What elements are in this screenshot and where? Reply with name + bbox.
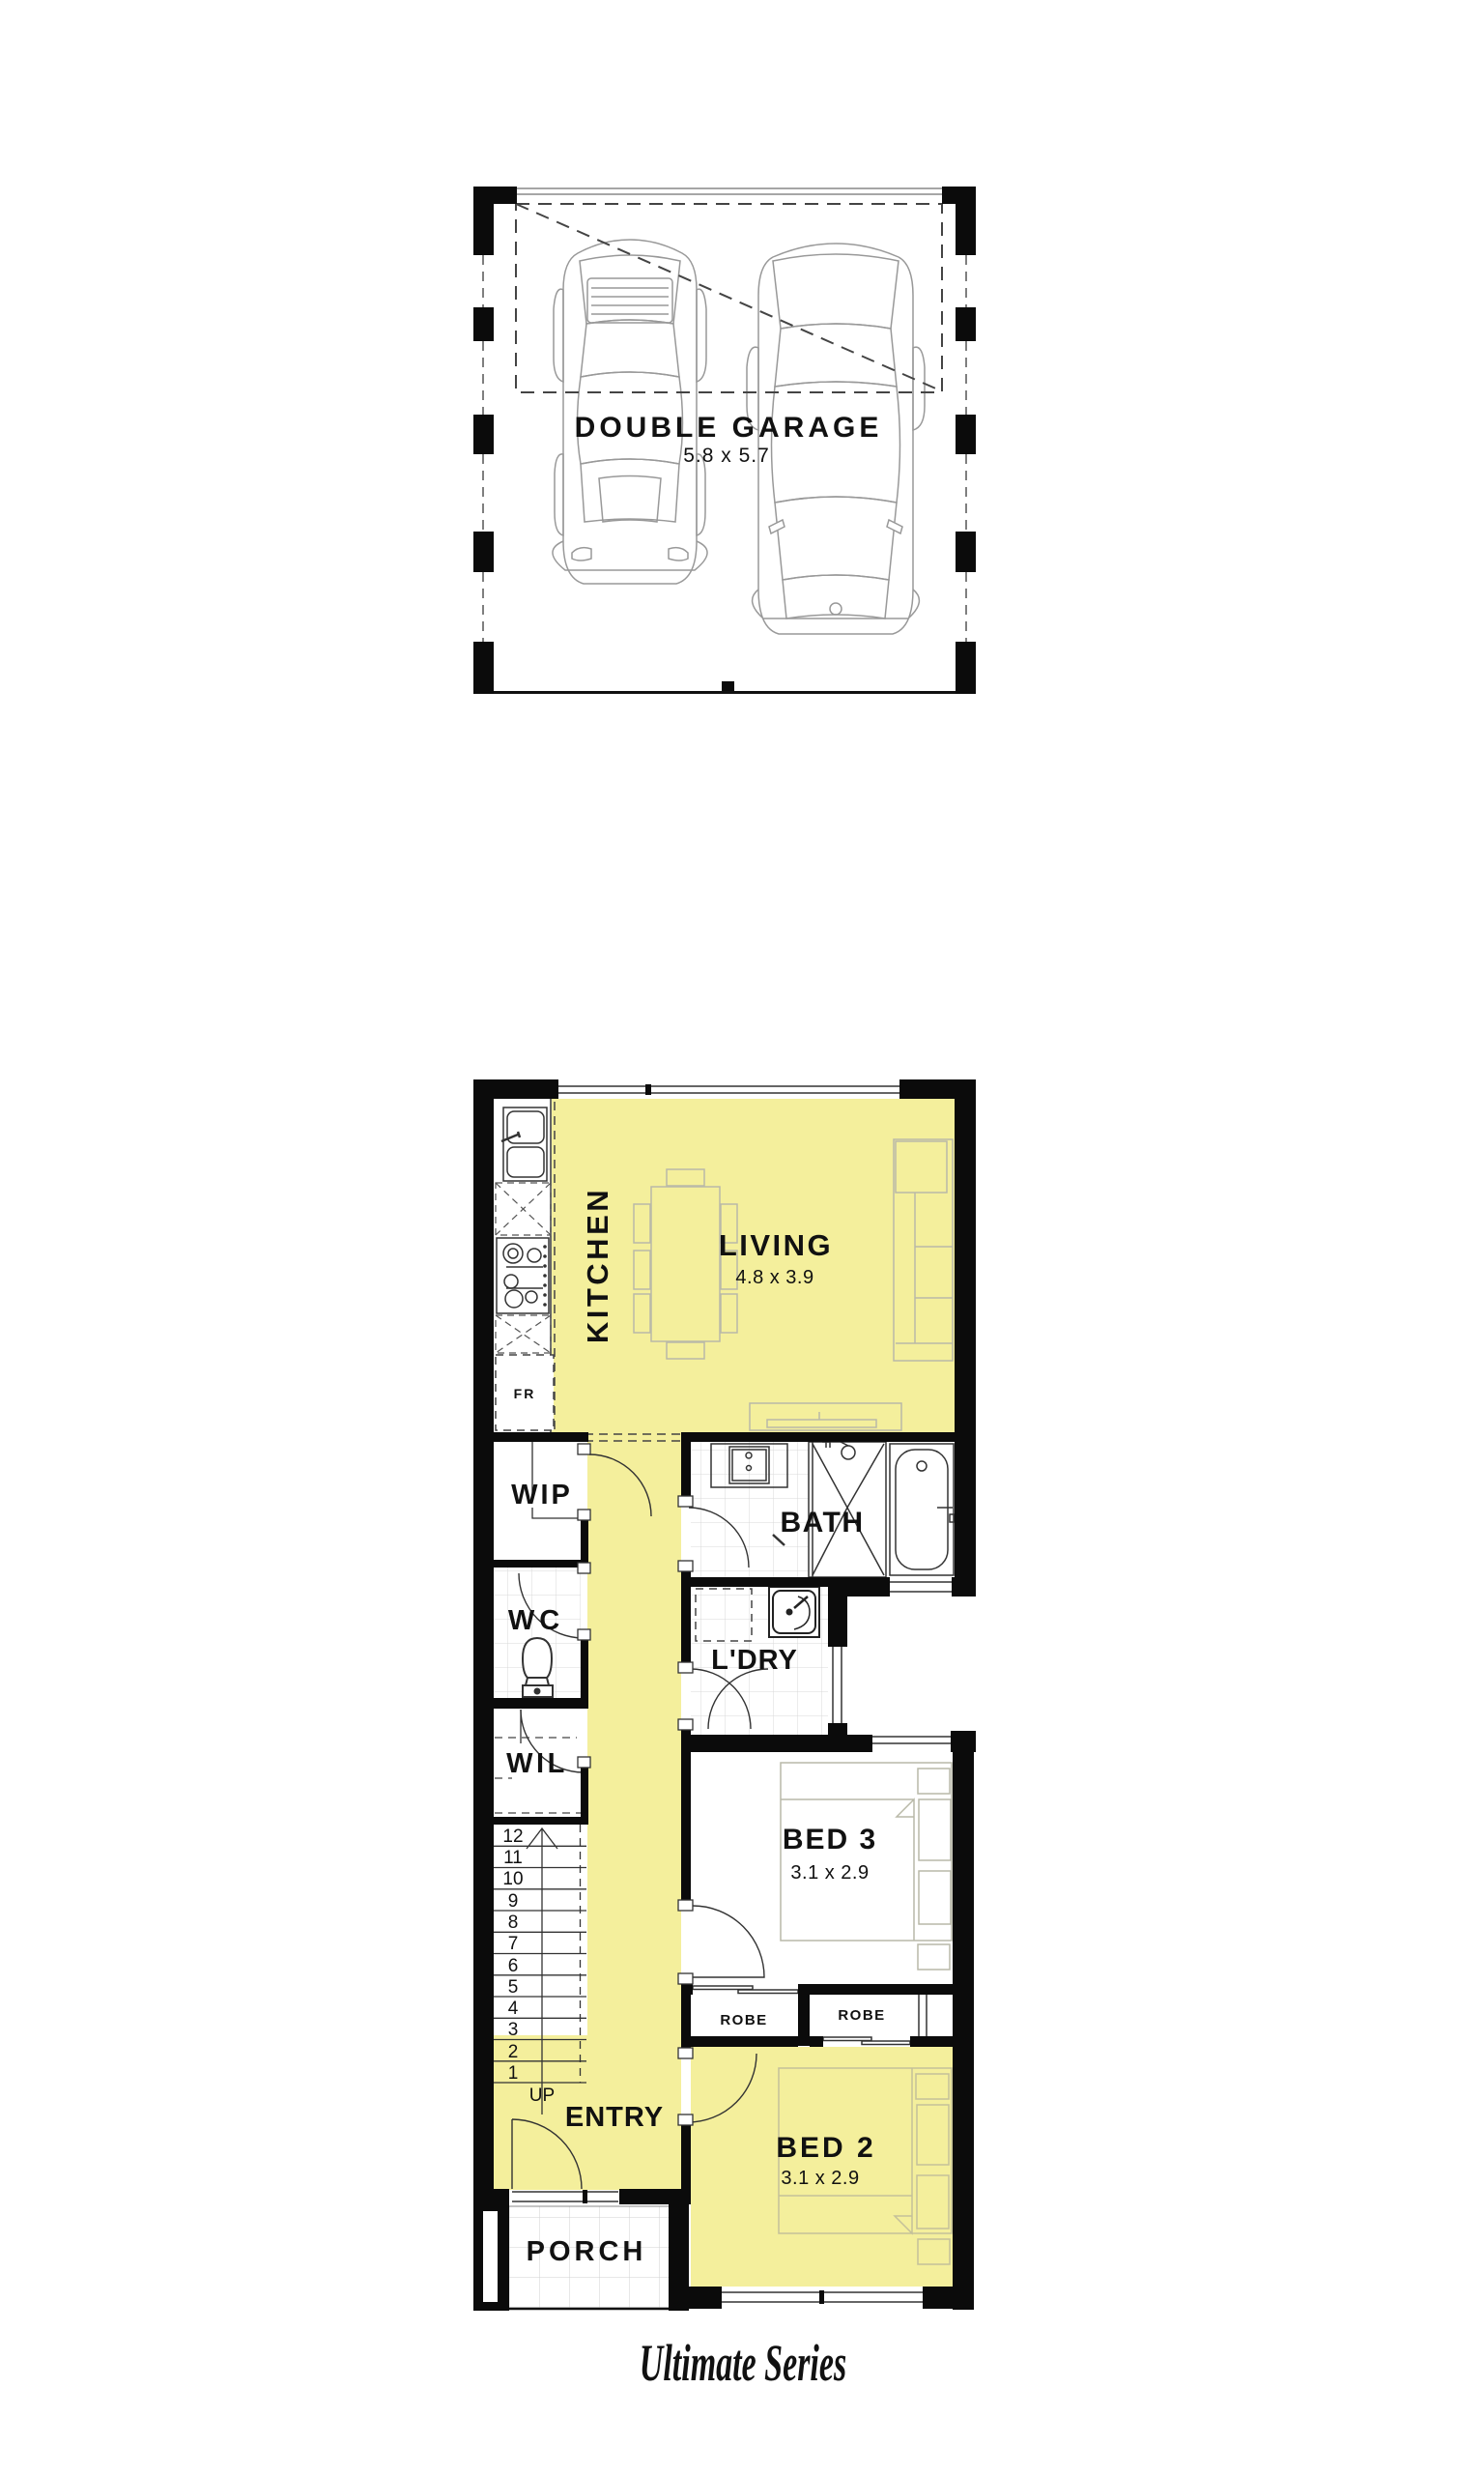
svg-text:DOUBLE GARAGE: DOUBLE GARAGE <box>575 412 883 444</box>
svg-text:5.8 x 5.7: 5.8 x 5.7 <box>683 445 770 467</box>
svg-text:3.1 x 2.9: 3.1 x 2.9 <box>790 1862 869 1884</box>
svg-text:BED 2: BED 2 <box>776 2132 875 2164</box>
svg-text:2: 2 <box>508 2042 519 2062</box>
svg-text:BED 3: BED 3 <box>783 1824 877 1855</box>
svg-text:Ultimate Series: Ultimate Series <box>640 2334 846 2392</box>
svg-text:KITCHEN: KITCHEN <box>581 1187 614 1343</box>
svg-text:9: 9 <box>508 1891 519 1912</box>
svg-text:10: 10 <box>502 1869 523 1889</box>
svg-text:6: 6 <box>508 1956 519 1976</box>
svg-text:WC: WC <box>508 1605 564 1636</box>
svg-text:FR: FR <box>514 1386 536 1401</box>
svg-text:WIP: WIP <box>511 1480 573 1510</box>
svg-text:7: 7 <box>508 1934 519 1954</box>
svg-text:ENTRY: ENTRY <box>565 2102 664 2133</box>
svg-text:4.8 x 3.9: 4.8 x 3.9 <box>735 1267 813 1288</box>
svg-text:5: 5 <box>508 1977 519 1998</box>
svg-text:3: 3 <box>508 2020 519 2040</box>
svg-text:8: 8 <box>508 1913 519 1933</box>
svg-text:1: 1 <box>508 2063 519 2084</box>
svg-text:UP: UP <box>529 2086 555 2106</box>
svg-text:BATH: BATH <box>780 1507 864 1539</box>
svg-text:PORCH: PORCH <box>527 2236 647 2267</box>
svg-text:L'DRY: L'DRY <box>711 1645 798 1676</box>
svg-text:WIL: WIL <box>506 1748 568 1779</box>
svg-text:ROBE: ROBE <box>838 2007 885 2024</box>
svg-text:3.1 x 2.9: 3.1 x 2.9 <box>781 2168 859 2189</box>
svg-text:12: 12 <box>502 1827 523 1847</box>
svg-text:4: 4 <box>508 1999 519 2019</box>
svg-text:11: 11 <box>503 1848 523 1868</box>
svg-text:LIVING: LIVING <box>719 1228 833 1262</box>
svg-text:ROBE: ROBE <box>720 2012 767 2028</box>
